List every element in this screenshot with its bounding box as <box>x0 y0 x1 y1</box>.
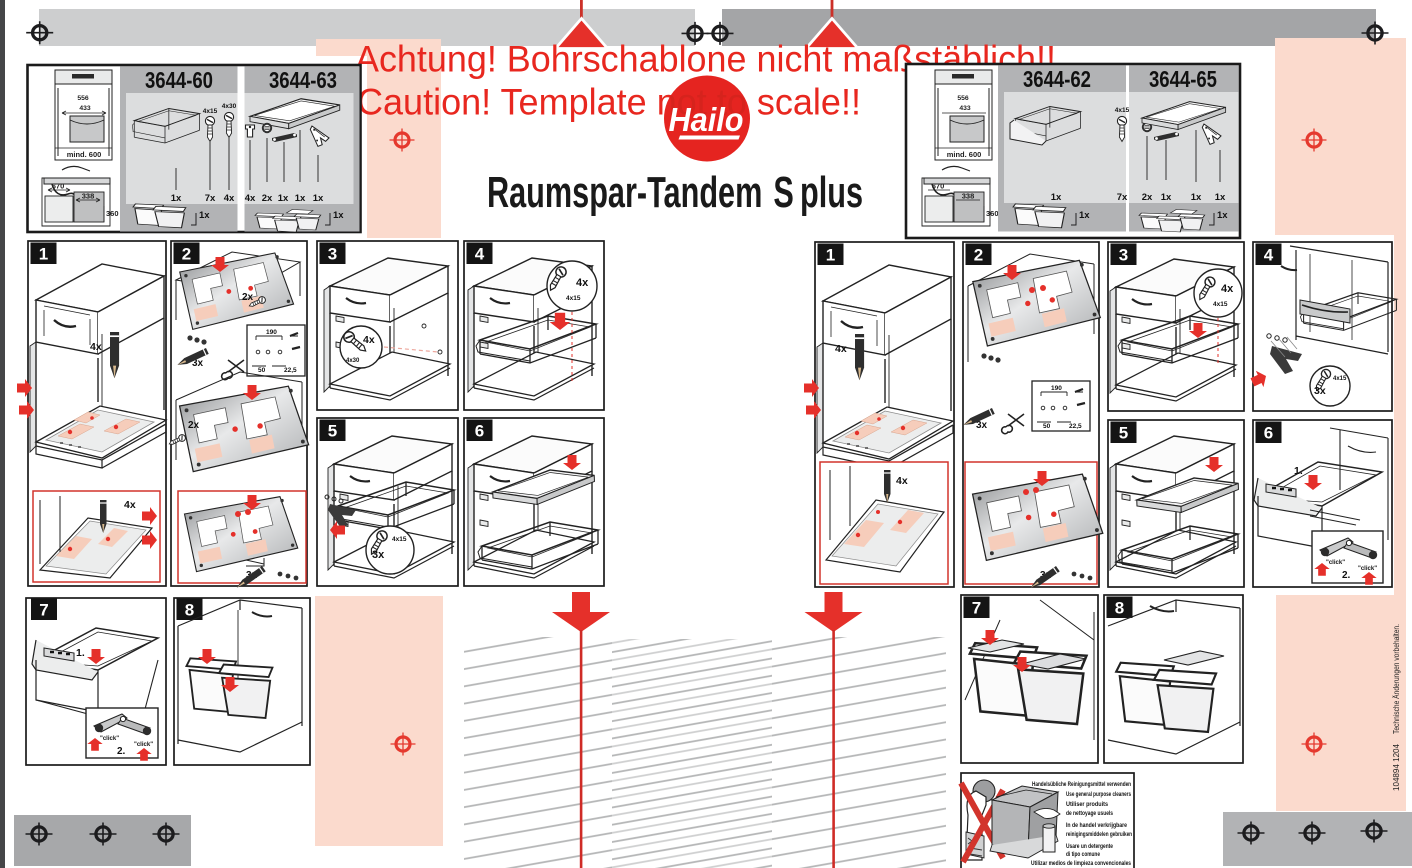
svg-text:8: 8 <box>185 601 194 620</box>
svg-text:4x: 4x <box>835 343 847 355</box>
svg-text:1x: 1x <box>295 193 306 204</box>
svg-text:1x: 1x <box>1079 210 1090 221</box>
svg-text:1x: 1x <box>278 193 289 204</box>
svg-text:2x: 2x <box>1142 192 1153 203</box>
svg-text:"click": "click" <box>1358 566 1377 572</box>
svg-text:3x: 3x <box>372 549 385 561</box>
svg-text:1: 1 <box>39 245 48 264</box>
svg-text:4: 4 <box>475 245 485 264</box>
svg-text:1x: 1x <box>1217 210 1228 221</box>
svg-text:7x: 7x <box>1117 192 1128 203</box>
svg-text:4x: 4x <box>245 193 256 204</box>
svg-text:4x: 4x <box>1221 283 1234 295</box>
svg-text:433: 433 <box>959 105 971 112</box>
svg-text:50: 50 <box>258 367 266 374</box>
svg-text:di tipo comune: di tipo comune <box>1066 851 1100 858</box>
svg-text:50: 50 <box>1043 423 1051 430</box>
svg-text:Utilizar medios de limpieza co: Utilizar medios de limpieza convencional… <box>1031 860 1131 867</box>
svg-text:1.: 1. <box>76 647 85 659</box>
svg-text:2: 2 <box>182 245 191 264</box>
svg-text:Hailo: Hailo <box>669 101 744 138</box>
svg-text:3644-60: 3644-60 <box>145 67 213 93</box>
svg-text:mind. 600: mind. 600 <box>67 150 102 159</box>
svg-text:4x: 4x <box>896 475 908 487</box>
svg-text:670: 670 <box>52 182 65 191</box>
svg-text:4x: 4x <box>224 193 235 204</box>
svg-text:7x: 7x <box>205 193 216 204</box>
svg-text:3x: 3x <box>1314 385 1326 397</box>
svg-text:Caution! Template not to scale: Caution! Template not to scale!! <box>357 81 861 123</box>
svg-text:4x30: 4x30 <box>222 103 237 110</box>
svg-text:360: 360 <box>986 209 999 218</box>
svg-text:In de handel verkrijgbare: In de handel verkrijgbare <box>1066 822 1127 829</box>
svg-text:556: 556 <box>957 95 969 102</box>
svg-text:3644-63: 3644-63 <box>269 67 337 93</box>
svg-text:4x: 4x <box>576 277 589 289</box>
svg-text:104894 1204: 104894 1204 <box>1391 744 1401 791</box>
svg-text:4x15: 4x15 <box>566 295 581 302</box>
svg-text:190: 190 <box>1051 385 1062 392</box>
svg-text:Utiliser produits: Utiliser produits <box>1066 801 1108 808</box>
svg-text:4x15: 4x15 <box>1115 107 1130 114</box>
svg-text:1.: 1. <box>1294 465 1303 477</box>
svg-text:1x: 1x <box>171 193 182 204</box>
svg-text:1x: 1x <box>313 193 324 204</box>
svg-text:1: 1 <box>826 246 835 265</box>
svg-text:1x: 1x <box>199 210 210 221</box>
svg-text:22,5: 22,5 <box>1069 423 1082 430</box>
svg-text:2x: 2x <box>242 292 254 303</box>
svg-text:433: 433 <box>79 105 91 112</box>
svg-text:4x: 4x <box>124 499 136 511</box>
svg-text:de nettoyage usuels: de nettoyage usuels <box>1066 810 1113 817</box>
svg-text:1x: 1x <box>1051 192 1062 203</box>
svg-text:1x: 1x <box>333 210 344 221</box>
svg-text:3: 3 <box>328 245 337 264</box>
svg-text:7: 7 <box>39 601 48 620</box>
svg-text:6: 6 <box>1264 424 1273 443</box>
svg-text:3: 3 <box>1119 246 1128 265</box>
svg-text:"click": "click" <box>134 742 153 748</box>
svg-text:190: 190 <box>266 329 277 336</box>
svg-text:Handelsübliche Reinigungsmitte: Handelsübliche Reinigungsmittel verwende… <box>1032 781 1131 788</box>
svg-text:2: 2 <box>974 246 983 265</box>
svg-text:3644-62: 3644-62 <box>1023 66 1091 92</box>
svg-text:reinigingsmiddelen gebruiken: reinigingsmiddelen gebruiken <box>1066 831 1132 838</box>
svg-text:5: 5 <box>1119 424 1128 443</box>
svg-text:2x: 2x <box>188 420 200 431</box>
svg-text:4x: 4x <box>363 334 375 346</box>
svg-text:338: 338 <box>962 192 975 201</box>
svg-text:3644-65: 3644-65 <box>1149 66 1217 92</box>
svg-text:"click": "click" <box>1326 560 1345 566</box>
svg-text:Use general purpose cleaners: Use general purpose cleaners <box>1066 791 1131 798</box>
svg-text:2x: 2x <box>262 193 273 204</box>
svg-text:360: 360 <box>106 209 119 218</box>
svg-text:4x15: 4x15 <box>203 108 218 115</box>
svg-text:8: 8 <box>1115 599 1124 618</box>
svg-text:1x: 1x <box>1191 192 1202 203</box>
svg-text:5: 5 <box>328 422 337 441</box>
svg-text:1x: 1x <box>1161 192 1172 203</box>
svg-text:4x30: 4x30 <box>346 358 360 364</box>
svg-text:556: 556 <box>77 95 89 102</box>
svg-text:Raumspar-Tandem S plus: Raumspar-Tandem S plus <box>487 168 863 217</box>
svg-text:4x15: 4x15 <box>1213 301 1228 308</box>
svg-text:22,5: 22,5 <box>284 367 297 374</box>
svg-text:Usare un detergente: Usare un detergente <box>1066 843 1113 850</box>
svg-text:4x15: 4x15 <box>1333 376 1347 382</box>
svg-text:670: 670 <box>932 182 945 191</box>
svg-text:6: 6 <box>475 422 484 441</box>
svg-text:mind. 600: mind. 600 <box>947 150 982 159</box>
svg-text:4x15: 4x15 <box>392 536 407 543</box>
svg-text:4: 4 <box>1264 246 1274 265</box>
svg-text:Technische Änderungen vorbehal: Technische Änderungen vorbehalten. <box>1391 624 1401 734</box>
svg-text:2.: 2. <box>1342 570 1351 581</box>
svg-text:"click": "click" <box>100 736 119 742</box>
svg-text:7: 7 <box>972 599 981 618</box>
svg-text:338: 338 <box>82 192 95 201</box>
svg-text:1x: 1x <box>1215 192 1226 203</box>
svg-text:4x: 4x <box>90 341 102 353</box>
svg-text:2.: 2. <box>117 746 126 757</box>
